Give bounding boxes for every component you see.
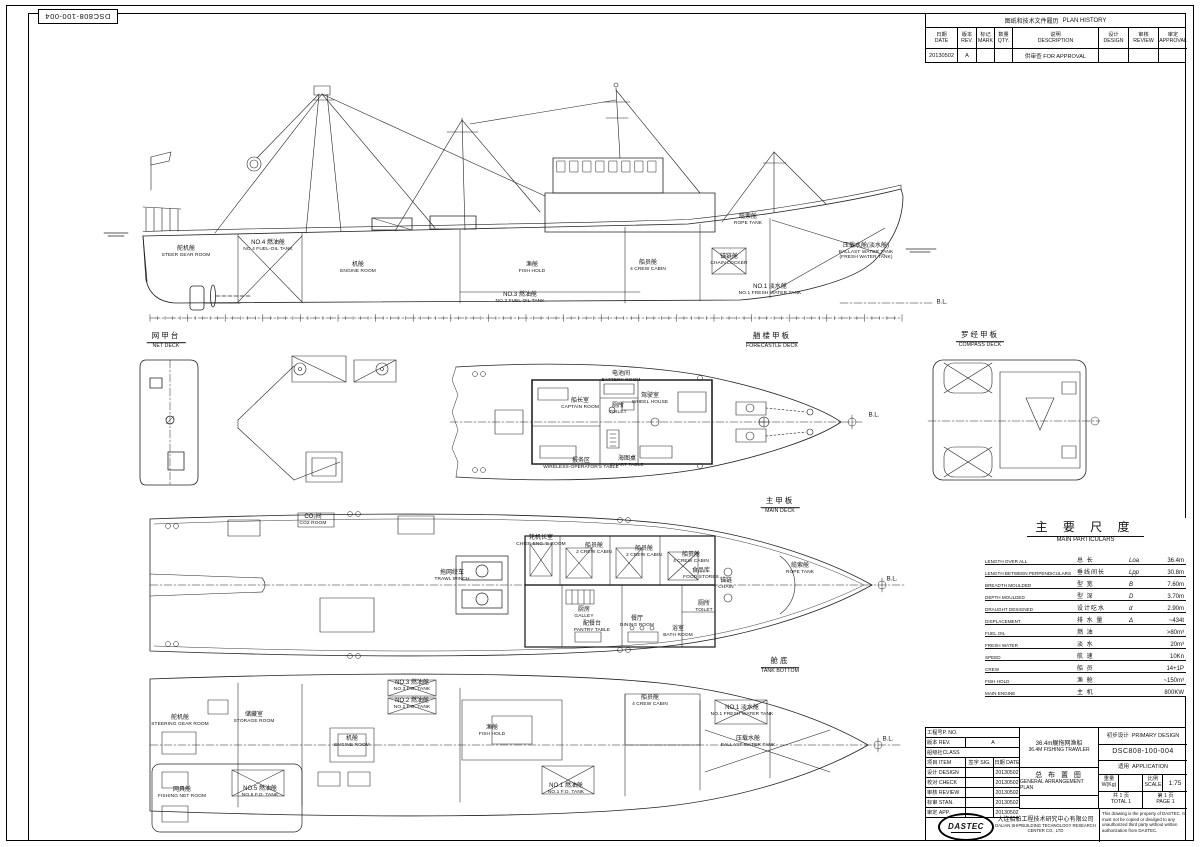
approval-row: 版本 REV.A xyxy=(926,738,1019,748)
label-fish-hold-bottom-cn: 渔舱 xyxy=(479,725,506,732)
drawing-labels-layer: 舵机舱STEER GEAR ROOMNO.4 燃油舱NO.4 FUEL-OIL … xyxy=(0,0,1200,847)
company-name: 大连船舶工程技术研究中心有限公司 DALIAN SHIPBUILDING TEC… xyxy=(994,811,1097,840)
label-steer-gear-room-cn: 舵机舱 xyxy=(162,246,211,253)
total-pages-cell: 共 1 页 TOTAL 1 xyxy=(1099,792,1143,808)
view-title-net-deck-cn: 网甲台 xyxy=(147,332,186,343)
label-ballast-water-tank-bottom-cn: 压载水舱 xyxy=(721,736,776,743)
label-crew-cabin-4-bottom-cn: 船员舱 xyxy=(632,695,668,702)
plan-history-header-row: 日期DATE版本REV.标记MARK数量QTY.说明DESCRIPTION设计D… xyxy=(926,28,1185,49)
particular-symbol: Lpp xyxy=(1129,570,1143,576)
particular-symbol: B xyxy=(1129,582,1143,588)
label-no1-fo-tank-bottom: NO.1 燃油舱NO.1 F.O. TANK xyxy=(548,783,584,795)
view-title-main-deck-cn: 主甲板 xyxy=(761,497,800,508)
drawing-sheet: DSC808-100-004 xyxy=(0,0,1200,847)
particular-symbol: d xyxy=(1129,606,1143,612)
label-no5-fo-tank-en: NO.5 F.O. TANK xyxy=(242,793,278,799)
label-wheel-house-cn: 驾驶室 xyxy=(632,393,668,400)
label-wheel-house: 驾驶室WHEEL HOUSE xyxy=(632,393,668,405)
label-steering-gear-room-bottom: 舵机舱STEERING GEAR ROOM xyxy=(151,715,209,727)
label-centerline-mark-main-deck: B.L. xyxy=(887,577,898,584)
application-cell: 适用 APPLICATION xyxy=(1099,761,1187,775)
particular-name-en: LENGTH OVER ALL xyxy=(985,559,1073,564)
particular-value: ~434t xyxy=(1143,618,1186,624)
particular-row: LENGTH OVER ALL总 长Loa36.4m xyxy=(985,553,1186,565)
label-no4-fuel-oil-tank-en: NO.4 FUEL-OIL TANK xyxy=(243,247,292,253)
particular-name-cn: 设计吃水 xyxy=(1073,603,1129,612)
weight-scale-row: 重量 W(Kg) 比例 SCALE 1:75 xyxy=(1099,775,1187,792)
particular-name-en: DRAUGHT DESIGNED xyxy=(985,607,1073,612)
main-particulars-rows: LENGTH OVER ALL总 长Loa36.4mLENGTH BETWEEN… xyxy=(985,553,1186,697)
col-label-en: REV. xyxy=(961,38,973,44)
plan-history-col-date: 日期DATE xyxy=(926,28,958,49)
dastec-logo-text: DASTEC xyxy=(948,822,984,831)
approval-label: 审核 REVIEW xyxy=(926,788,966,797)
view-title-compass-deck: 罗经甲板COMPASS DECK xyxy=(956,331,1004,349)
label-toilet-forecastle: 厕所TOILET xyxy=(609,403,626,415)
label-fish-hold-profile-en: FISH HOLD xyxy=(519,269,546,275)
particular-value: 7.60m xyxy=(1143,582,1186,588)
label-captain-room: 船长室CAPTAIN ROOM xyxy=(561,398,599,410)
label-crew-cabin-2a: 船员舱2 CREW CABIN xyxy=(576,543,612,555)
label-steering-gear-room-bottom-en: STEERING GEAR ROOM xyxy=(151,722,209,728)
label-bath-room: 浴室BATH ROOM xyxy=(663,626,693,638)
label-crew-cabin-2a-cn: 船员舱 xyxy=(576,543,612,550)
property-note: This drawing is the property of DASTEC. … xyxy=(1099,809,1187,842)
particular-row: FRESH WATER淡 水20m³ xyxy=(985,637,1186,649)
particular-row: SPEED航 速10Kn xyxy=(985,649,1186,661)
label-chain-main-deck: 锚链CHAIN xyxy=(718,578,733,590)
approval-row: 审核 REVIEW20130502 xyxy=(926,788,1019,798)
label-no4-fuel-oil-tank: NO.4 燃油舱NO.4 FUEL-OIL TANK xyxy=(243,240,292,252)
label-toilet-forecastle-cn: 厕所 xyxy=(609,403,626,410)
particular-row: LENGTH BETWEEN PERPENDICULARS垂线间长Lpp30.8… xyxy=(985,565,1186,577)
label-no1-fo-tank-bottom-en: NO.1 F.O. TANK xyxy=(548,790,584,796)
label-battery-room: 电池间BATTERY ROOM xyxy=(601,371,640,383)
plan-history-title: 图纸和技术文件履历 PLAN HISTORY xyxy=(926,14,1185,28)
label-bath-room-en: BATH ROOM xyxy=(663,633,693,639)
title-block-spacer xyxy=(1020,796,1099,809)
approval-row: 船级社CLASS xyxy=(926,748,1019,758)
label-chart-table-en: CHART TABLE xyxy=(610,463,644,469)
label-crew-cabin-4-main-en: 4 CREW CABIN xyxy=(673,559,709,565)
label-ballast-tank-profile: 压载水舱(淡水舱)BALLAST WATER TANK (FRESH WATER… xyxy=(833,243,899,261)
label-galley-en: GALLEY xyxy=(574,614,593,620)
scale-label-cell: 比例 SCALE xyxy=(1143,775,1163,791)
label-chief-eng-room: 轮机长室CHIEF ENG.'S ROOM xyxy=(516,535,566,547)
plan-history-cell xyxy=(1099,49,1129,62)
weight-label-en: W(Kg) xyxy=(1102,783,1117,789)
title-block-approval-table: 工程号P. NO.版本 REV.A船级社CLASS项目 ITEM签字 SIG.日… xyxy=(926,728,1020,809)
plan-history-cell: A xyxy=(958,49,977,62)
col-label-en: APPROVAL xyxy=(1159,38,1187,44)
label-pantry-table-en: PANTRY TABLE xyxy=(574,628,610,634)
company-band: DASTEC 大连船舶工程技术研究中心有限公司 DALIAN SHIPBUILD… xyxy=(926,809,1099,842)
approval-date: 20130502 xyxy=(994,788,1020,797)
dastec-logo: DASTEC xyxy=(938,813,994,841)
plan-history-data-rows: 20130502A供审查 FOR APPROVAL xyxy=(926,49,1185,62)
label-crew-cabin-profile: 船员舱4 CREW CABIN xyxy=(630,260,666,272)
drawing-number: DSC808-100-004 xyxy=(1112,748,1173,756)
label-no3-fo-tank-bottom: NO.3 燃油舱NO.3 F.O. TANK xyxy=(394,680,430,692)
label-ballast-tank-profile-en: BALLAST WATER TANK (FRESH WATER TANK) xyxy=(833,250,899,261)
label-steer-gear-room-en: STEER GEAR ROOM xyxy=(162,253,211,259)
label-bath-room-cn: 浴室 xyxy=(663,626,693,633)
plan-history-title-en: PLAN HISTORY xyxy=(1063,18,1107,24)
label-fishing-net-room-cn: 网具舱 xyxy=(158,787,206,794)
particular-name-cn: 燃 油 xyxy=(1073,627,1129,636)
label-wireless-operators-table-en: WIRELESS-OPERATOR'S TABLE xyxy=(543,465,619,471)
plan-history-col-qty: 数量QTY. xyxy=(995,28,1013,49)
label-steer-gear-room: 舵机舱STEER GEAR ROOM xyxy=(162,246,211,258)
page-number-en: PAGE 1 xyxy=(1156,800,1174,806)
label-ballast-water-tank-bottom: 压载水舱BALLAST WATER TANK xyxy=(721,736,776,748)
plan-history-cell xyxy=(977,49,995,62)
label-dining-room-cn: 餐厅 xyxy=(620,616,654,623)
approval-date: 日期 DATE xyxy=(994,758,1020,767)
label-chart-table-cn: 海图桌 xyxy=(610,456,644,463)
plan-history-cell: 20130502 xyxy=(926,49,958,62)
main-particulars-title-cn: 主 要 尺 度 xyxy=(985,518,1186,535)
particular-name-en: FUEL OIL xyxy=(985,631,1073,636)
plan-history-col-design: 设计DESIGN xyxy=(1099,28,1129,49)
label-battery-room-en: BATTERY ROOM xyxy=(601,378,640,384)
label-chain-locker-profile-cn: 锚链舱 xyxy=(710,254,747,261)
approval-label: 船级社CLASS xyxy=(926,748,1019,757)
label-no2-fo-tank-bottom: NO.2 燃油舱NO.2 F.O. TANK xyxy=(394,698,430,710)
title-block-ship-name: 36.4m艉拖网渔船 36.4M FISHING TRAWLER xyxy=(1020,728,1099,768)
label-fish-hold-profile-cn: 渔舱 xyxy=(519,262,546,269)
particular-name-cn: 淡 水 xyxy=(1073,639,1129,648)
label-no1-fresh-water-tank-profile-en: NO.1 FRESH WATER TANK xyxy=(739,291,802,297)
approval-row: 标审 STAN.20130502 xyxy=(926,798,1019,808)
particular-name-en: LENGTH BETWEEN PERPENDICULARS xyxy=(985,571,1073,576)
plan-history-cell xyxy=(1159,49,1187,62)
label-pantry-table-cn: 配餐台 xyxy=(574,621,610,628)
label-no1-fresh-water-tank-profile: NO.1 淡水舱NO.1 FRESH WATER TANK xyxy=(739,284,802,296)
title-block-drawing-title: 总 布 置 图 GENERAL ARRANGEMENT PLAN xyxy=(1020,768,1099,796)
label-no2-fo-tank-bottom-cn: NO.2 燃油舱 xyxy=(394,698,430,705)
label-rope-tank-profile-en: ROPE TANK xyxy=(734,221,762,227)
approval-date: 20130502 xyxy=(994,778,1020,787)
approval-label: 工程号P. NO. xyxy=(926,728,1019,737)
view-title-tank-bottom-en: TANK BOTTOM xyxy=(761,669,799,675)
label-steering-gear-room-bottom-cn: 舵机舱 xyxy=(151,715,209,722)
company-name-en: DALIAN SHIPBUILDING TECHNOLOGY RESEARCH … xyxy=(994,824,1097,834)
plan-history-cell xyxy=(1129,49,1159,62)
particular-name-en: DISPLACEMENT xyxy=(985,619,1073,624)
property-note-text: This drawing is the property of DASTEC. … xyxy=(1102,811,1185,833)
label-chief-eng-room-en: CHIEF ENG.'S ROOM xyxy=(516,542,566,548)
label-crew-cabin-2b: 船员舱2 CREW CABIN xyxy=(626,546,662,558)
plan-history-cell xyxy=(995,49,1013,62)
label-co2-room-en: CO2 ROOM xyxy=(300,521,327,527)
label-wireless-operators-table: 报务区WIRELESS-OPERATOR'S TABLE xyxy=(543,458,619,470)
label-no3-fuel-oil-tank-profile-cn: NO.3 燃油舱 xyxy=(496,292,545,299)
label-ballast-tank-profile-cn: 压载水舱(淡水舱) xyxy=(833,243,899,250)
view-title-forecastle-deck-cn: 艏楼甲板 xyxy=(746,332,798,343)
plan-history-col-mark: 标记MARK xyxy=(977,28,995,49)
label-no3-fo-tank-bottom-cn: NO.3 燃油舱 xyxy=(394,680,430,687)
label-chain-main-deck-cn: 锚链 xyxy=(718,578,733,585)
label-food-stores: 食品库FOOD STORES xyxy=(683,568,719,580)
label-crew-cabin-4-bottom-en: 4 CREW CABIN xyxy=(632,702,668,708)
particular-name-en: DEPTH MOULDED xyxy=(985,595,1073,600)
plan-history-col-review: 审核REVIEW xyxy=(1129,28,1159,49)
col-label-en: REVIEW xyxy=(1133,38,1153,44)
view-title-main-deck-en: MAIN DECK xyxy=(761,509,800,515)
label-no2-fo-tank-bottom-en: NO.2 F.O. TANK xyxy=(394,705,430,711)
main-particulars-table: 主 要 尺 度 MAIN PARTICULARS LENGTH OVER ALL… xyxy=(985,518,1186,697)
label-captain-room-en: CAPTAIN ROOM xyxy=(561,405,599,411)
particular-row: CREW船 员14+1P xyxy=(985,661,1186,673)
col-label-en: QTY. xyxy=(998,38,1009,44)
label-co2-room: CO₂间CO2 ROOM xyxy=(300,514,327,526)
particular-row: FUEL OIL燃 油>80m³ xyxy=(985,625,1186,637)
view-title-tank-bottom: 舱底TANK BOTTOM xyxy=(761,657,799,675)
particular-row: DEPTH MOULDED型 深D3.70m xyxy=(985,589,1186,601)
label-food-stores-en: FOOD STORES xyxy=(683,575,719,581)
application-en: APPLICATION xyxy=(1132,764,1168,770)
particular-name-en: FRESH WATER xyxy=(985,643,1073,648)
col-label-en: DESIGN xyxy=(1104,38,1124,44)
label-food-stores-cn: 食品库 xyxy=(683,568,719,575)
scale-label-en: SCALE xyxy=(1144,783,1161,789)
label-rope-tank-profile-cn: 缆索舱 xyxy=(734,214,762,221)
label-chief-eng-room-cn: 轮机长室 xyxy=(516,535,566,542)
label-trawl-winch-cn: 拖网绞车 xyxy=(434,570,469,577)
plan-history-col-rev: 版本REV. xyxy=(958,28,977,49)
label-rope-tank-profile: 缆索舱ROPE TANK xyxy=(734,214,762,226)
particular-value: 2.90m xyxy=(1143,606,1186,612)
view-title-compass-deck-cn: 罗经甲板 xyxy=(956,331,1004,342)
particular-name-en: MAIN ENGINE xyxy=(985,691,1073,696)
label-trawl-winch-en: TRAWL WINCH xyxy=(434,577,469,583)
label-storage-room-en: STORAGE ROOM xyxy=(234,719,275,725)
particular-symbol: Loa xyxy=(1129,558,1143,564)
view-title-forecastle-deck: 艏楼甲板FORECASTLE DECK xyxy=(746,332,798,350)
view-title-net-deck: 网甲台NET DECK xyxy=(147,332,186,350)
approval-row: 项目 ITEM签字 SIG.日期 DATE xyxy=(926,758,1019,768)
particular-name-cn: 航 速 xyxy=(1073,651,1129,660)
particular-name-en: BREADTH MOULDED xyxy=(985,583,1073,588)
particular-name-en: SPEED xyxy=(985,655,1073,660)
drawing-title-en: GENERAL ARRANGEMENT PLAN xyxy=(1020,780,1098,792)
label-galley: 厨房GALLEY xyxy=(574,607,593,619)
label-galley-cn: 厨房 xyxy=(574,607,593,614)
label-no4-fuel-oil-tank-cn: NO.4 燃油舱 xyxy=(243,240,292,247)
label-rope-tank-main-deck: 缆索舱ROPE TANK xyxy=(786,563,814,575)
label-captain-room-cn: 船长室 xyxy=(561,398,599,405)
label-ballast-water-tank-bottom-en: BALLAST WATER TANK xyxy=(721,743,776,749)
particular-name-en: FISH HOLD xyxy=(985,679,1073,684)
design-stage-cn: 初步设计 xyxy=(1107,733,1129,739)
label-engine-room-bottom: 机舱ENGINE ROOM xyxy=(334,736,370,748)
label-fish-hold-bottom-en: FISH HOLD xyxy=(479,732,506,738)
main-particulars-title-en: MAIN PARTICULARS xyxy=(985,537,1186,543)
scale-value-cell: 1:75 xyxy=(1163,775,1187,791)
application-cn: 适用 xyxy=(1118,764,1129,770)
particular-row: DRAUGHT DESIGNED设计吃水d2.90m xyxy=(985,601,1186,613)
particular-symbol: D xyxy=(1129,594,1143,600)
approval-row: 设计 DESIGN20130502 xyxy=(926,768,1019,778)
view-title-main-deck: 主甲板MAIN DECK xyxy=(761,497,800,515)
label-chart-table: 海图桌CHART TABLE xyxy=(610,456,644,468)
particular-value: >80m³ xyxy=(1143,630,1186,636)
ship-name-en: 36.4M FISHING TRAWLER xyxy=(1028,748,1089,754)
label-crew-cabin-4-bottom: 船员舱4 CREW CABIN xyxy=(632,695,668,707)
col-label-en: DESCRIPTION xyxy=(1038,38,1073,44)
label-crew-cabin-4-main-cn: 船员舱 xyxy=(673,552,709,559)
label-centerline-mark-forecastle: B.L. xyxy=(869,413,880,420)
label-wireless-operators-table-cn: 报务区 xyxy=(543,458,619,465)
page-number-cell: 第 1 页 PAGE 1 xyxy=(1143,792,1187,808)
label-dining-room: 餐厅DINING ROOM xyxy=(620,616,654,628)
particular-row: FISH HOLD渔 舱~150m³ xyxy=(985,673,1186,685)
approval-row: 校对 CHECK20130502 xyxy=(926,778,1019,788)
approval-label: 标审 STAN. xyxy=(926,798,966,807)
label-wheel-house-en: WHEEL HOUSE xyxy=(632,400,668,406)
title-block: 工程号P. NO.版本 REV.A船级社CLASS项目 ITEM签字 SIG.日… xyxy=(925,727,1186,841)
label-crew-cabin-2b-en: 2 CREW CABIN xyxy=(626,553,662,559)
approval-date: 20130502 xyxy=(994,768,1020,777)
view-title-tank-bottom-cn: 舱底 xyxy=(761,657,799,668)
view-title-net-deck-en: NET DECK xyxy=(147,344,186,350)
particular-value: 30.8m xyxy=(1143,570,1186,576)
total-pages-en: TOTAL 1 xyxy=(1111,800,1131,806)
approval-label: 项目 ITEM xyxy=(926,758,966,767)
label-battery-room-cn: 电池间 xyxy=(601,371,640,378)
label-fish-hold-bottom: 渔舱FISH HOLD xyxy=(479,725,506,737)
label-crew-cabin-profile-en: 4 CREW CABIN xyxy=(630,267,666,273)
particular-row: DISPLACEMENT排 水 量Δ~434t xyxy=(985,613,1186,625)
main-particulars-title-text: 主 要 尺 度 xyxy=(1027,520,1143,537)
label-no3-fuel-oil-tank-profile-en: NO.3 FUEL OIL TANK xyxy=(496,299,545,305)
particular-value: 800KW xyxy=(1143,690,1186,696)
label-chain-locker-profile-en: CHAIN LOCKER xyxy=(710,261,747,267)
particular-name-cn: 排 水 量 xyxy=(1073,615,1129,624)
dastec-logo-underline xyxy=(951,832,981,833)
col-label-en: DATE xyxy=(935,38,948,44)
particular-name-cn: 型 深 xyxy=(1073,591,1129,600)
label-crew-cabin-4-main: 船员舱4 CREW CABIN xyxy=(673,552,709,564)
plan-history-table: 图纸和技术文件履历 PLAN HISTORY 日期DATE版本REV.标记MAR… xyxy=(925,13,1186,63)
approval-signature xyxy=(966,768,994,777)
approval-label: 校对 CHECK xyxy=(926,778,966,787)
label-no5-fo-tank-cn: NO.5 燃油舱 xyxy=(242,786,278,793)
label-fishing-net-room: 网具舱FISHING NET ROOM xyxy=(158,787,206,799)
approval-date: 20130502 xyxy=(994,798,1020,807)
label-rope-tank-main-deck-en: ROPE TANK xyxy=(786,570,814,576)
particular-value: 14+1P xyxy=(1143,666,1186,672)
label-no1-fresh-water-tank-bottom: NO.1 淡水舱NO.1 FRESH WATER TANK xyxy=(711,705,774,717)
label-crew-cabin-profile-cn: 船员舱 xyxy=(630,260,666,267)
label-engine-room-profile-en: ENGINE ROOM xyxy=(340,269,376,275)
label-no3-fuel-oil-tank-profile: NO.3 燃油舱NO.3 FUEL OIL TANK xyxy=(496,292,545,304)
particular-value: 3.70m xyxy=(1143,594,1186,600)
particular-name-cn: 主 机 xyxy=(1073,687,1129,696)
particular-name-cn: 型 宽 xyxy=(1073,579,1129,588)
view-title-forecastle-deck-en: FORECASTLE DECK xyxy=(746,344,798,350)
plan-history-col-description: 说明DESCRIPTION xyxy=(1013,28,1099,49)
label-fishing-net-room-en: FISHING NET ROOM xyxy=(158,794,206,800)
label-no5-fo-tank: NO.5 燃油舱NO.5 F.O. TANK xyxy=(242,786,278,798)
label-baseline-mark-profile: B.L. xyxy=(937,300,948,307)
total-page-row: 共 1 页 TOTAL 1 第 1 页 PAGE 1 xyxy=(1099,792,1187,809)
label-trawl-winch: 拖网绞车TRAWL WINCH xyxy=(434,570,469,582)
approval-label: 版本 REV. xyxy=(926,738,966,747)
label-no1-fresh-water-tank-bottom-cn: NO.1 淡水舱 xyxy=(711,705,774,712)
plan-history-col-approval: 审定APPROVAL xyxy=(1159,28,1187,49)
approval-label: 设计 DESIGN xyxy=(926,768,966,777)
particular-value: 10Kn xyxy=(1143,654,1186,660)
label-rope-tank-main-deck-cn: 缆索舱 xyxy=(786,563,814,570)
label-crew-cabin-2a-en: 2 CREW CABIN xyxy=(576,550,612,556)
label-chain-main-deck-en: CHAIN xyxy=(718,585,733,591)
approval-row: 工程号P. NO. xyxy=(926,728,1019,738)
label-engine-room-profile: 机舱ENGINE ROOM xyxy=(340,262,376,274)
label-storage-room-cn: 储藏室 xyxy=(234,712,275,719)
particular-value: ~150m³ xyxy=(1143,678,1186,684)
approval-signature: 签字 SIG. xyxy=(966,758,994,767)
particular-symbol: Δ xyxy=(1129,618,1143,624)
design-stage-en: PRIMARY DESIGN xyxy=(1132,733,1179,739)
label-centerline-mark-tank-bottom: B.L. xyxy=(883,737,894,744)
label-toilet-forecastle-en: TOILET xyxy=(609,410,626,416)
label-engine-room-bottom-cn: 机舱 xyxy=(334,736,370,743)
label-crew-cabin-2b-cn: 船员舱 xyxy=(626,546,662,553)
particular-value: 36.4m xyxy=(1143,558,1186,564)
label-toilet-main-deck: 厕所TOILET xyxy=(695,601,712,613)
col-label-en: MARK xyxy=(978,38,993,44)
label-no1-fresh-water-tank-profile-cn: NO.1 淡水舱 xyxy=(739,284,802,291)
label-dining-room-en: DINING ROOM xyxy=(620,623,654,629)
plan-history-title-cn: 图纸和技术文件履历 xyxy=(1005,16,1059,25)
label-no1-fo-tank-bottom-cn: NO.1 燃油舱 xyxy=(548,783,584,790)
approval-signature xyxy=(966,778,994,787)
particular-name-cn: 船 员 xyxy=(1073,663,1129,672)
label-engine-room-profile-cn: 机舱 xyxy=(340,262,376,269)
drawing-number-cell: DSC808-100-004 xyxy=(1099,745,1187,761)
weight-label-cell: 重量 W(Kg) xyxy=(1099,775,1119,791)
particular-row: MAIN ENGINE主 机800KW xyxy=(985,685,1186,697)
label-fish-hold-profile: 渔舱FISH HOLD xyxy=(519,262,546,274)
particular-name-en: CREW xyxy=(985,667,1073,672)
scale-value: 1:75 xyxy=(1169,780,1182,787)
label-toilet-main-deck-cn: 厕所 xyxy=(695,601,712,608)
label-engine-room-bottom-en: ENGINE ROOM xyxy=(334,743,370,749)
approval-signature xyxy=(966,788,994,797)
label-chain-locker-profile: 锚链舱CHAIN LOCKER xyxy=(710,254,747,266)
label-pantry-table: 配餐台PANTRY TABLE xyxy=(574,621,610,633)
plan-history-cell: 供审查 FOR APPROVAL xyxy=(1013,49,1099,62)
particular-row: BREADTH MOULDED型 宽B7.60m xyxy=(985,577,1186,589)
weight-value-cell xyxy=(1119,775,1143,791)
particular-name-cn: 渔 舱 xyxy=(1073,675,1129,684)
approval-value: A xyxy=(966,738,1020,747)
label-storage-room: 储藏室STORAGE ROOM xyxy=(234,712,275,724)
approval-signature xyxy=(966,798,994,807)
particular-name-cn: 垂线间长 xyxy=(1073,567,1129,576)
label-no1-fresh-water-tank-bottom-en: NO.1 FRESH WATER TANK xyxy=(711,712,774,718)
view-title-compass-deck-en: COMPASS DECK xyxy=(956,343,1004,349)
label-co2-room-cn: CO₂间 xyxy=(300,514,327,521)
particular-value: 20m³ xyxy=(1143,642,1186,648)
design-stage-cell: 初步设计 PRIMARY DESIGN xyxy=(1099,728,1187,745)
label-toilet-main-deck-en: TOILET xyxy=(695,608,712,614)
label-no3-fo-tank-bottom-en: NO.3 F.O. TANK xyxy=(394,687,430,693)
particular-name-cn: 总 长 xyxy=(1073,555,1129,564)
